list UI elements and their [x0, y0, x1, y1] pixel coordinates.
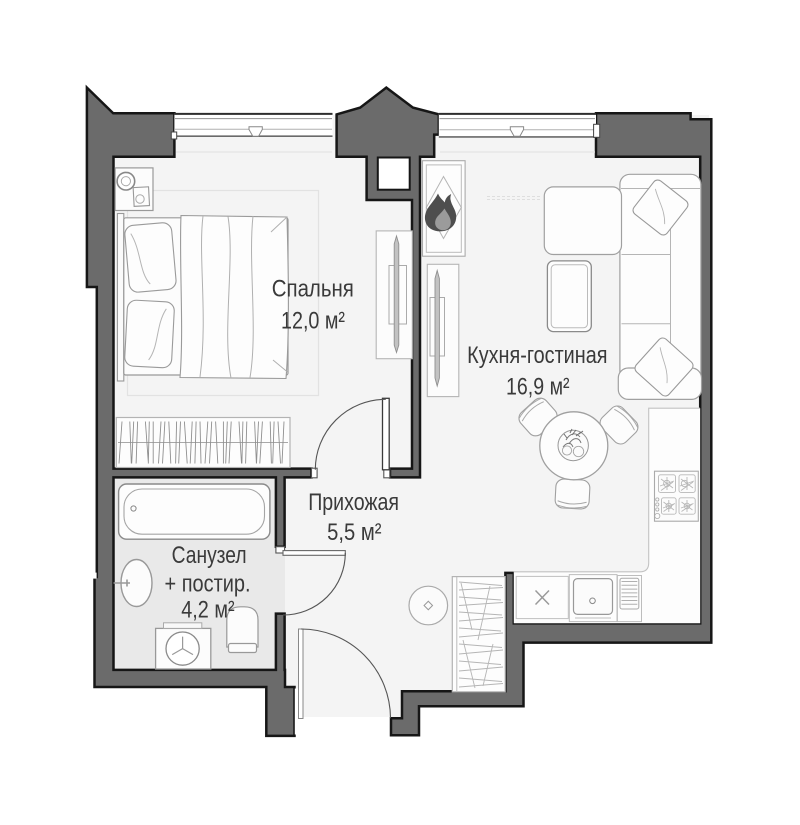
svg-text:+ постир.: + постир. [165, 569, 251, 596]
svg-text:Кухня-гостиная: Кухня-гостиная [467, 341, 607, 368]
svg-text:Спальня: Спальня [272, 275, 354, 302]
svg-text:Прихожая: Прихожая [308, 488, 399, 516]
svg-text:Санузел: Санузел [172, 541, 247, 569]
svg-text:4,2 м²: 4,2 м² [181, 596, 234, 623]
svg-text:16,9 м²: 16,9 м² [506, 372, 570, 400]
svg-text:12,0 м²: 12,0 м² [281, 307, 345, 335]
svg-text:5,5 м²: 5,5 м² [327, 518, 382, 545]
